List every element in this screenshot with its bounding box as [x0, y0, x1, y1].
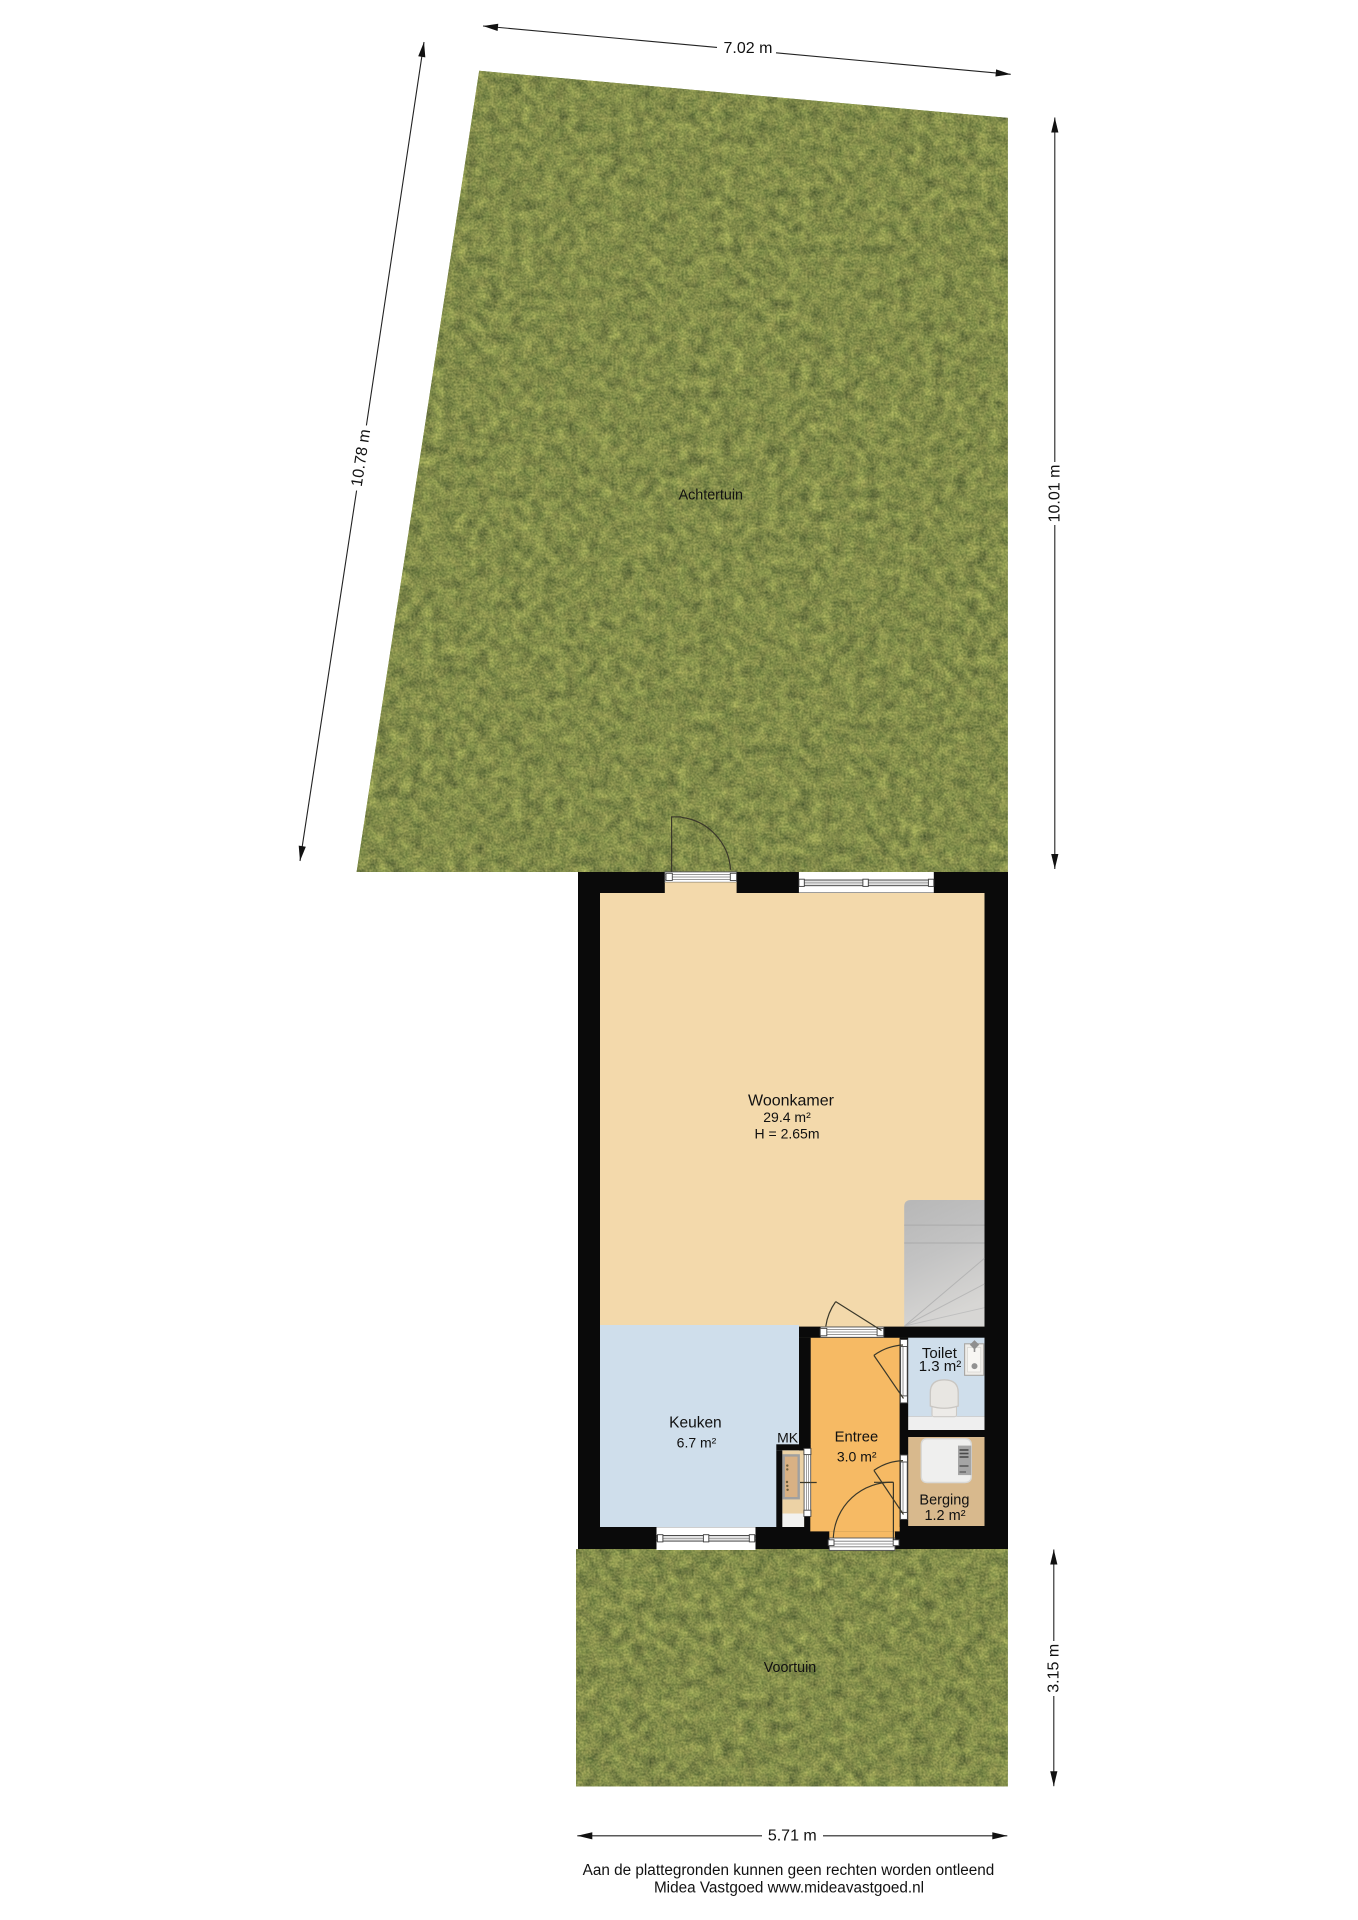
svg-text:7.02 m: 7.02 m: [724, 40, 773, 57]
svg-text:Keuken: Keuken: [669, 1415, 722, 1432]
svg-text:Woonkamer: Woonkamer: [748, 1092, 835, 1109]
svg-text:Achtertuin: Achtertuin: [679, 488, 743, 504]
svg-text:1.2 m²: 1.2 m²: [924, 1508, 965, 1524]
svg-text:5.71 m: 5.71 m: [768, 1827, 817, 1844]
svg-text:1.3 m²: 1.3 m²: [919, 1358, 962, 1375]
svg-text:29.4 m²: 29.4 m²: [763, 1109, 811, 1125]
svg-text:6.7 m²: 6.7 m²: [677, 1434, 717, 1450]
svg-text:3.0 m²: 3.0 m²: [837, 1449, 877, 1465]
svg-text:Voortuin: Voortuin: [764, 1660, 817, 1676]
svg-text:Berging: Berging: [919, 1492, 969, 1508]
svg-text:Entree: Entree: [835, 1429, 879, 1445]
svg-text:H = 2.65m: H = 2.65m: [755, 1126, 820, 1142]
svg-text:3.15 m: 3.15 m: [1045, 1644, 1062, 1693]
svg-text:10.01 m: 10.01 m: [1046, 465, 1063, 523]
svg-text:Midea Vastgoed www.mideavastgo: Midea Vastgoed www.mideavastgoed.nl: [654, 1879, 924, 1896]
svg-text:MK: MK: [777, 1429, 799, 1445]
svg-text:Aan de plattegronden kunnen ge: Aan de plattegronden kunnen geen rechten…: [583, 1862, 995, 1879]
